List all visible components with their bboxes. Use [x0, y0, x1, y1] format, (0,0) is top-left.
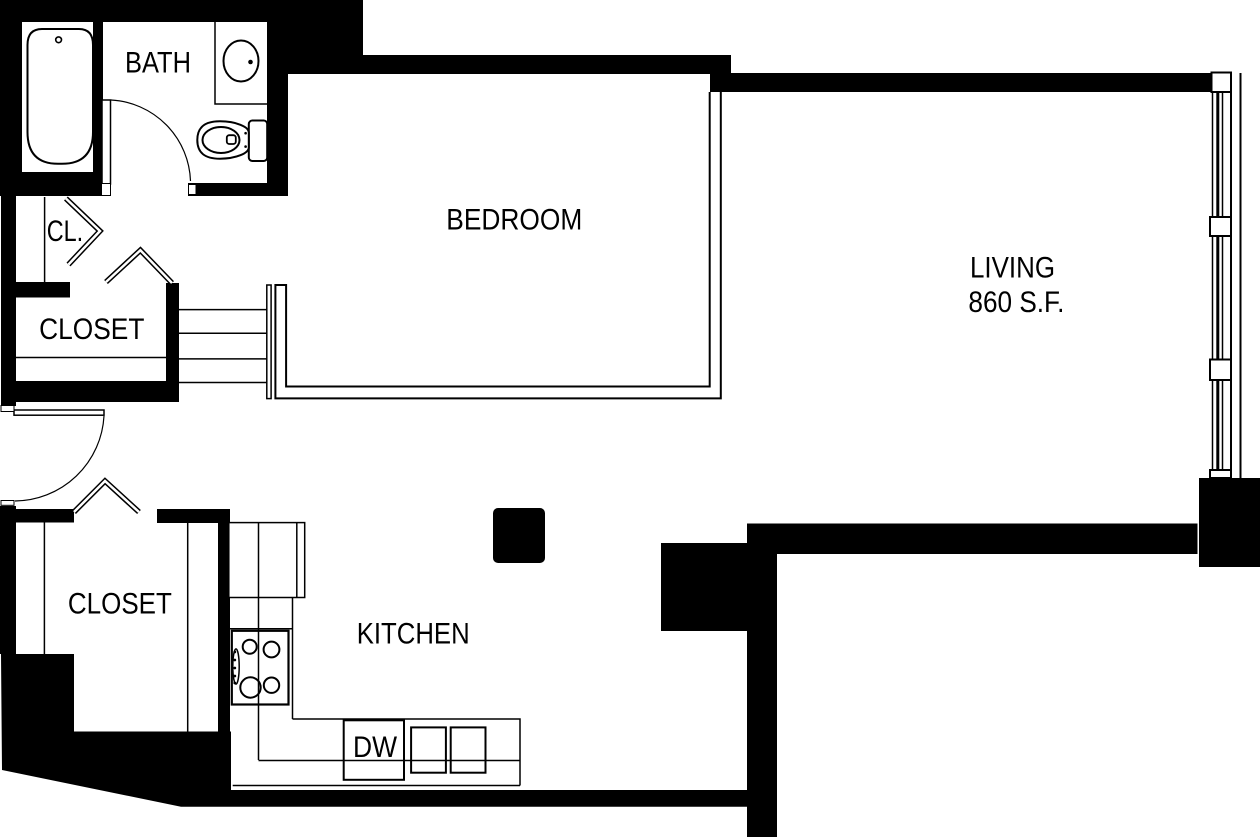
svg-text:CL.: CL.	[47, 215, 83, 248]
svg-text:CLOSET: CLOSET	[39, 313, 144, 346]
svg-text:DW: DW	[353, 731, 398, 764]
svg-text:KITCHEN: KITCHEN	[357, 617, 470, 650]
svg-text:LIVING: LIVING	[970, 252, 1055, 285]
svg-text:860 S.F.: 860 S.F.	[968, 286, 1064, 319]
svg-text:CLOSET: CLOSET	[68, 587, 172, 620]
svg-text:BATH: BATH	[125, 46, 191, 79]
svg-text:BEDROOM: BEDROOM	[446, 203, 582, 236]
